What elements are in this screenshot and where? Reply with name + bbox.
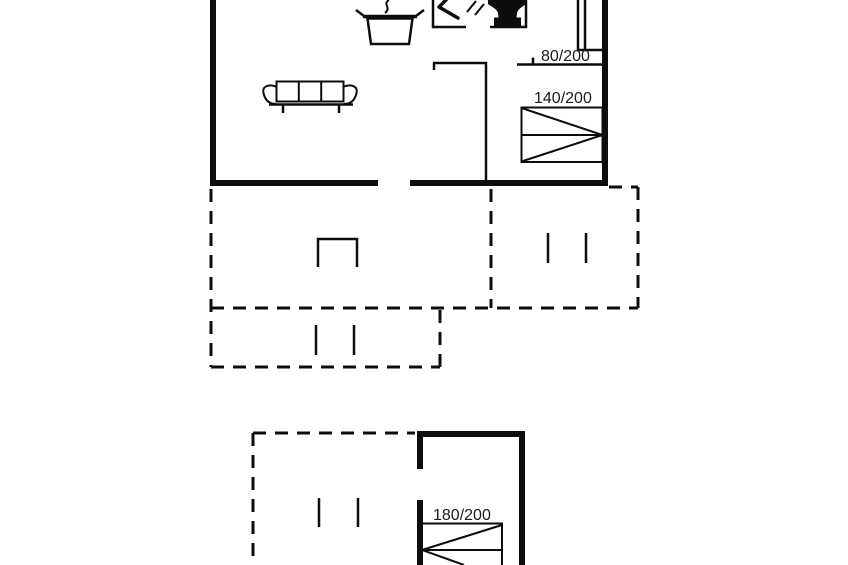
annex-walls xyxy=(417,431,525,565)
toilet-icon xyxy=(488,0,526,26)
bed-label-80: 80/200 xyxy=(541,48,590,65)
terrace-opening-marks-right xyxy=(548,233,586,263)
annex-terrace-outline xyxy=(253,433,415,565)
sofa-arm-left xyxy=(263,85,277,104)
annex-bed-duvet-lines xyxy=(422,525,502,565)
terrace-opening-marks-annex xyxy=(319,498,358,527)
steam-icon xyxy=(385,0,389,13)
sofa-cushion-dividers xyxy=(299,82,321,102)
bed-label-140: 140/200 xyxy=(534,90,592,107)
shower-icon xyxy=(439,0,458,18)
floor-plan-drawing: 80/200 140/200 xyxy=(0,0,848,565)
bed-label-180: 180/200 xyxy=(433,507,491,524)
wall-bottom-right xyxy=(410,180,608,186)
terrace-edge-bottom xyxy=(211,308,440,367)
annex-wall-right xyxy=(519,431,525,565)
wall-bottom-left xyxy=(210,180,378,186)
cooking-pot-icon xyxy=(356,0,424,44)
terrace-edge-topright xyxy=(609,187,638,308)
sofa-legs xyxy=(283,105,339,113)
terrace-markings xyxy=(316,233,586,355)
terrace-table-icon xyxy=(318,239,357,267)
terrace-outline xyxy=(211,187,638,367)
annex-wall-top xyxy=(417,431,525,437)
sofa-back xyxy=(277,82,344,102)
wall-left xyxy=(210,0,216,186)
double-bed-icon xyxy=(522,108,603,163)
floor-plan-canvas: 80/200 140/200 xyxy=(0,0,848,565)
shower-spray-marks xyxy=(467,1,484,15)
terrace-opening-marks-bottom xyxy=(316,325,354,355)
pot-body xyxy=(368,19,413,45)
single-bed-outline xyxy=(577,0,602,50)
bathroom-fixtures xyxy=(439,0,526,26)
sofa-icon xyxy=(263,82,356,114)
annex-bed-icon xyxy=(422,524,502,565)
sofa-arm-right xyxy=(343,85,357,104)
annex-wall-left-upper xyxy=(417,431,423,469)
single-bed-icon xyxy=(577,0,602,50)
hall-wall xyxy=(433,63,487,70)
